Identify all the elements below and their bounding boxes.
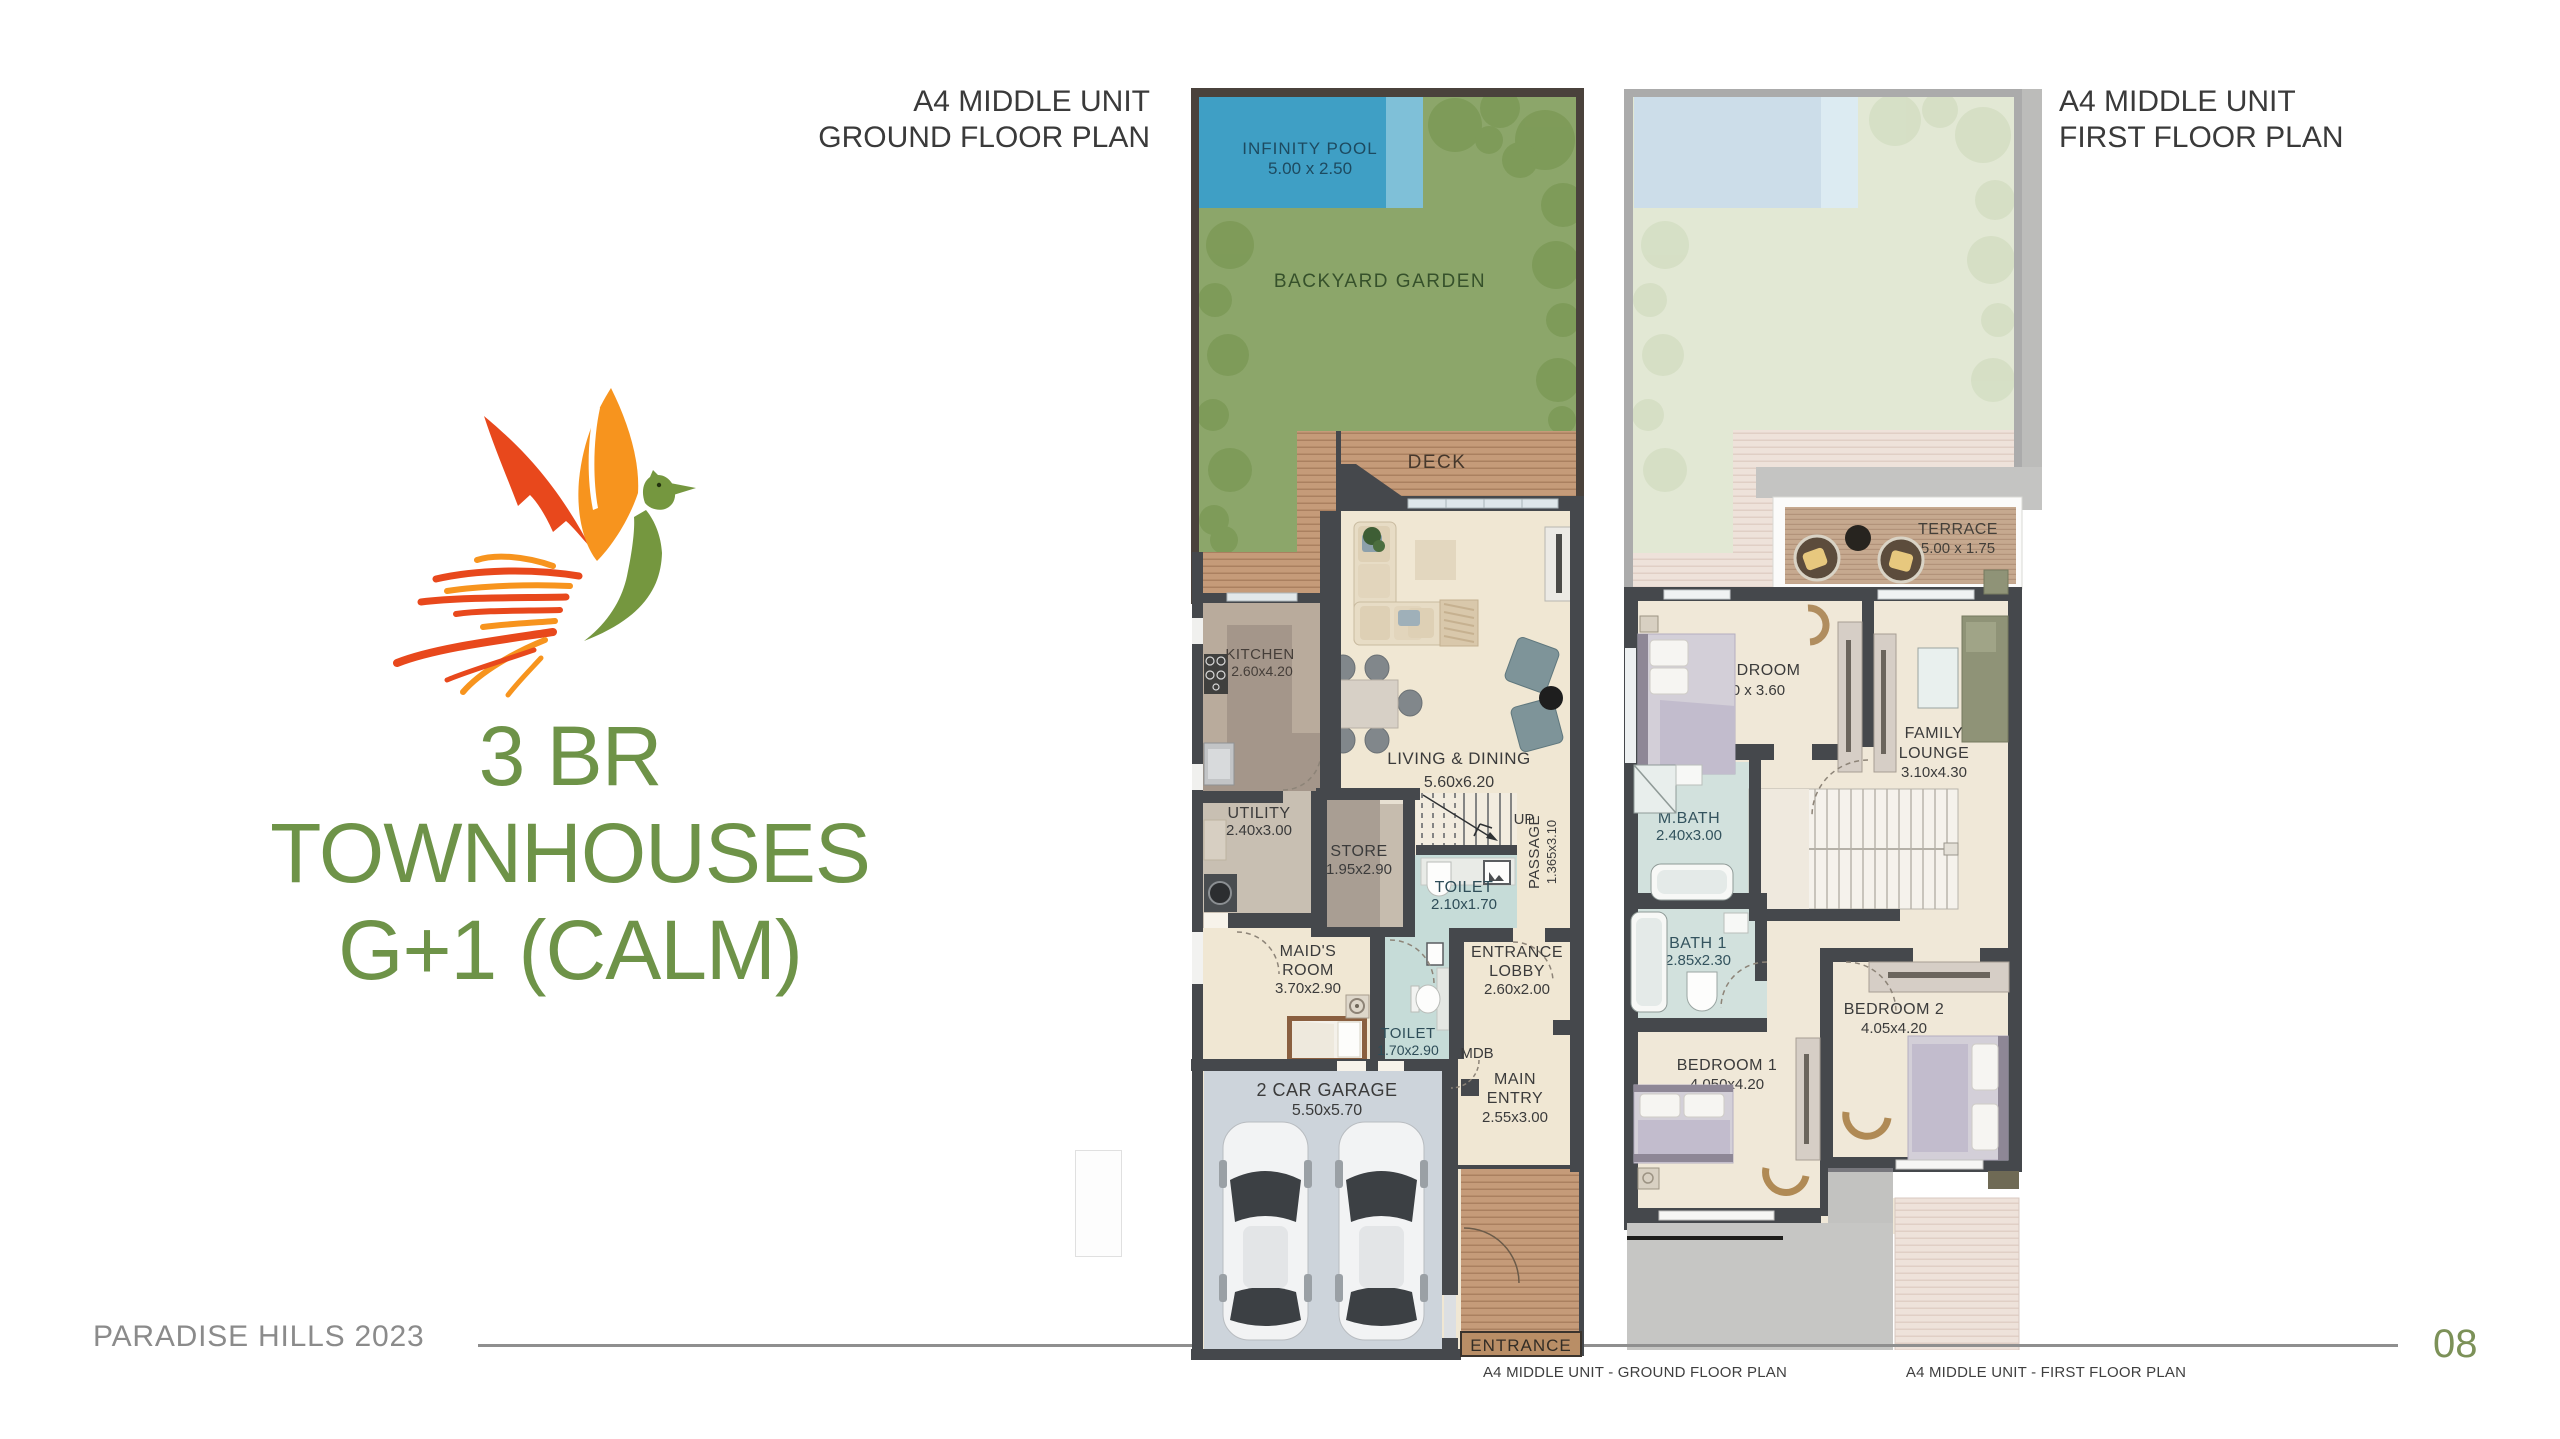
svg-text:2.85x2.30: 2.85x2.30 bbox=[1665, 952, 1731, 969]
svg-text:2.55x3.00: 2.55x3.00 bbox=[1482, 1109, 1548, 1126]
svg-text:PASSAGE: PASSAGE bbox=[1526, 815, 1543, 889]
svg-text:MDB: MDB bbox=[1460, 1045, 1493, 1062]
svg-text:5.00 x 1.75: 5.00 x 1.75 bbox=[1921, 540, 1995, 557]
svg-text:LOBBY: LOBBY bbox=[1489, 963, 1545, 980]
svg-text:ENTRANCE: ENTRANCE bbox=[1471, 944, 1563, 961]
svg-text:2.60x4.20: 2.60x4.20 bbox=[1231, 663, 1293, 679]
svg-text:5.50x5.70: 5.50x5.70 bbox=[1292, 1102, 1362, 1119]
svg-text:KITCHEN: KITCHEN bbox=[1225, 646, 1294, 663]
svg-text:2.40x3.00: 2.40x3.00 bbox=[1656, 827, 1722, 844]
svg-text:1.365x3.10: 1.365x3.10 bbox=[1544, 820, 1559, 884]
svg-text:TOILET: TOILET bbox=[1380, 1025, 1435, 1042]
svg-text:BEDROOM 1: BEDROOM 1 bbox=[1677, 1057, 1778, 1074]
svg-text:MAIN: MAIN bbox=[1494, 1071, 1536, 1088]
svg-text:5.60x6.20: 5.60x6.20 bbox=[1424, 774, 1494, 791]
svg-text:STORE: STORE bbox=[1330, 843, 1387, 860]
svg-text:ROOM: ROOM bbox=[1282, 962, 1334, 979]
svg-text:2.60x2.00: 2.60x2.00 bbox=[1484, 981, 1550, 998]
svg-text:2.40x3.00: 2.40x3.00 bbox=[1226, 822, 1292, 839]
svg-text:DECK: DECK bbox=[1408, 452, 1467, 473]
svg-text:3.70x2.90: 3.70x2.90 bbox=[1275, 980, 1341, 997]
svg-text:1.95x2.90: 1.95x2.90 bbox=[1326, 861, 1392, 878]
svg-text:ENTRY: ENTRY bbox=[1487, 1090, 1543, 1107]
svg-text:FAMILY: FAMILY bbox=[1905, 725, 1964, 742]
svg-text:BACKYARD GARDEN: BACKYARD GARDEN bbox=[1274, 271, 1486, 292]
svg-text:INFINITY POOL: INFINITY POOL bbox=[1242, 139, 1378, 158]
svg-text:1.70x2.90: 1.70x2.90 bbox=[1377, 1042, 1439, 1058]
svg-text:BEDROOM 2: BEDROOM 2 bbox=[1844, 1001, 1945, 1018]
svg-text:MAID'S: MAID'S bbox=[1280, 943, 1337, 960]
svg-text:ENTRANCE: ENTRANCE bbox=[1470, 1336, 1572, 1355]
svg-text:LIVING & DINING: LIVING & DINING bbox=[1387, 749, 1531, 768]
svg-text:4.05x4.20: 4.05x4.20 bbox=[1861, 1020, 1927, 1037]
svg-text:2.10x1.70: 2.10x1.70 bbox=[1431, 896, 1497, 913]
svg-text:5.00 x 2.50: 5.00 x 2.50 bbox=[1268, 159, 1352, 178]
svg-text:UTILITY: UTILITY bbox=[1227, 805, 1290, 822]
svg-text:TOILET: TOILET bbox=[1435, 879, 1494, 896]
svg-text:BATH 1: BATH 1 bbox=[1669, 935, 1727, 952]
svg-text:3.10x4.30: 3.10x4.30 bbox=[1901, 764, 1967, 781]
svg-text:2 CAR GARAGE: 2 CAR GARAGE bbox=[1256, 1080, 1397, 1100]
svg-text:TERRACE: TERRACE bbox=[1918, 521, 1998, 538]
svg-text:LOUNGE: LOUNGE bbox=[1899, 745, 1970, 762]
